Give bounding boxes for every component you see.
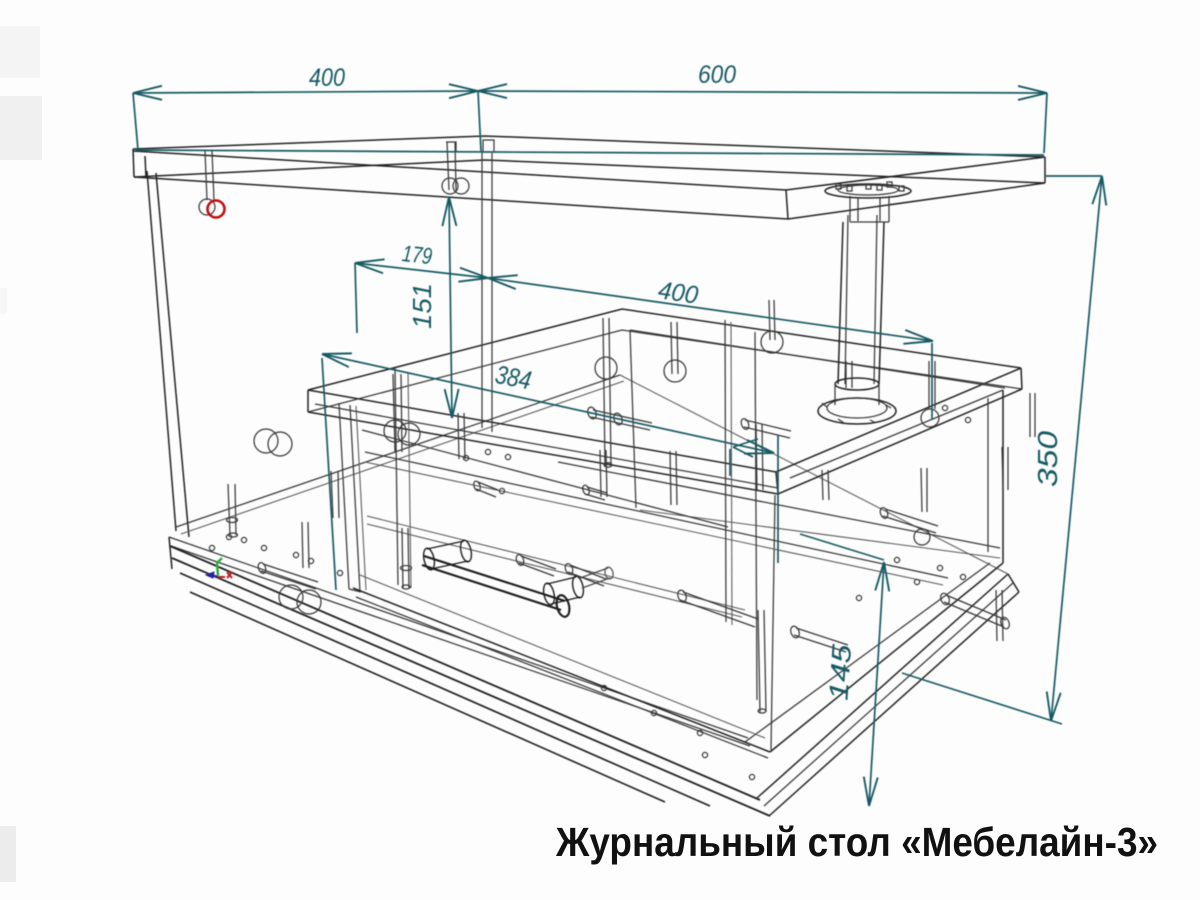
svg-text:350: 350: [1032, 430, 1063, 487]
svg-text:400: 400: [309, 64, 345, 92]
svg-text:179: 179: [401, 240, 434, 269]
svg-text:145: 145: [823, 642, 857, 701]
svg-text:400: 400: [656, 276, 700, 309]
svg-text:600: 600: [698, 61, 736, 89]
svg-text:Журнальный стол «Мебелайн-3»: Журнальный стол «Мебелайн-3»: [555, 819, 1158, 865]
svg-text:151: 151: [407, 283, 437, 329]
